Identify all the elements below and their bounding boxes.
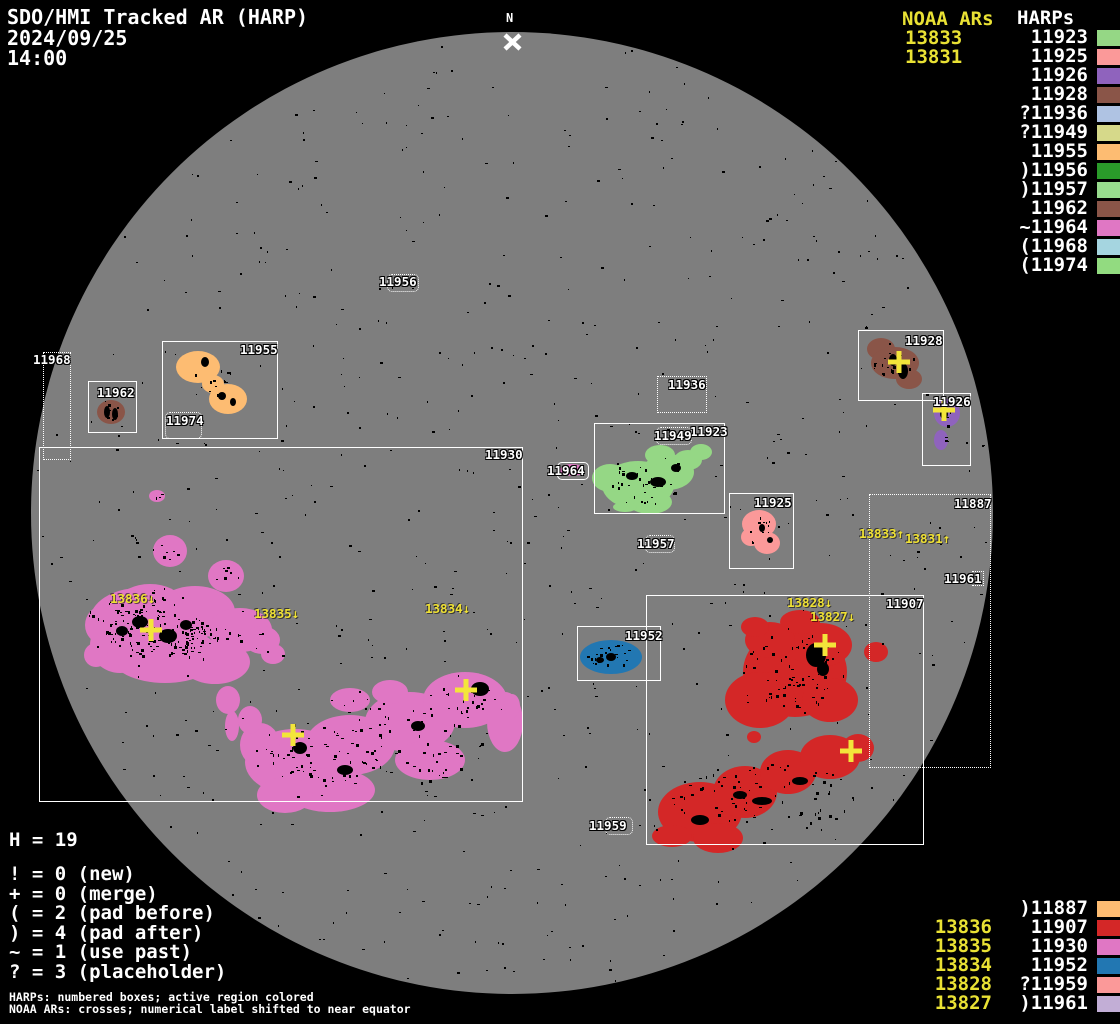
harp-box-label-11936: 11936 xyxy=(668,378,706,391)
noaa-ar-item-13831: 13831 xyxy=(905,48,962,67)
symbol-legend-line-2: ( = 2 (pad before) xyxy=(9,904,215,923)
harp-color-swatch-11936 xyxy=(1097,106,1120,122)
harp-tracking-visualization: 1193011907119551196211928119261192311925… xyxy=(0,0,1120,1024)
harp-box-label-11907: 11907 xyxy=(886,597,924,610)
harp-color-swatch-11952 xyxy=(1097,958,1120,974)
harp-box-label-11955: 11955 xyxy=(240,343,278,356)
harp-box-label-11887: 11887 xyxy=(954,497,992,510)
harp-color-swatch-11923 xyxy=(1097,30,1120,46)
harp-box-label-11949: 11949 xyxy=(654,429,692,442)
harp-box-label-11957: 11957 xyxy=(637,537,675,550)
harp-color-swatch-11968 xyxy=(1097,239,1120,255)
harp-color-swatch-11928 xyxy=(1097,87,1120,103)
harp-box-label-11928: 11928 xyxy=(905,334,943,347)
noaa-ar-pointer-13828: 13828↓ xyxy=(787,596,832,609)
noaa-ar-pointer-13834: 13834↓ xyxy=(425,602,470,615)
harp-color-swatch-11959 xyxy=(1097,977,1120,993)
harp-box-label-11962: 11962 xyxy=(97,386,135,399)
harp-color-swatch-11930 xyxy=(1097,939,1120,955)
harp-box-label-11930: 11930 xyxy=(485,448,523,461)
harp-color-swatch-11925 xyxy=(1097,49,1120,65)
harp-box-label-11974: 11974 xyxy=(166,414,204,427)
noaa-ar-pointer-13836: 13836↓ xyxy=(110,592,155,605)
harp-color-swatch-11949 xyxy=(1097,125,1120,141)
harp-box-label-11926: 11926 xyxy=(933,395,971,408)
harp-box-label-11952: 11952 xyxy=(625,629,663,642)
harp-count: H = 19 xyxy=(9,831,78,850)
symbol-legend-line-4: ~ = 1 (use past) xyxy=(9,943,192,962)
harp-color-swatch-11962 xyxy=(1097,201,1120,217)
harp-box-label-11968: 11968 xyxy=(33,353,71,366)
harp-color-swatch-11907 xyxy=(1097,920,1120,936)
harp-box-11968 xyxy=(43,352,71,460)
harp-color-swatch-11964 xyxy=(1097,220,1120,236)
harp-color-swatch-11955 xyxy=(1097,144,1120,160)
harp-color-swatch-11961 xyxy=(1097,996,1120,1012)
noaa-ar-pointer-13831: 13831↑ xyxy=(905,532,950,545)
noaa-ar-pointer-13827: 13827↓ xyxy=(810,610,855,623)
page-title: SDO/HMI Tracked AR (HARP) xyxy=(7,7,308,28)
harp-box-11930 xyxy=(39,447,523,802)
footnote-noaa: NOAA ARs: crosses; numerical label shift… xyxy=(9,1003,411,1015)
harp-item-11974: (11974 xyxy=(1019,256,1088,275)
noaa-ar-item-13827: 13827 xyxy=(935,994,992,1013)
north-label: N xyxy=(506,12,513,24)
harp-box-label-11923: 11923 xyxy=(690,425,728,438)
harp-color-swatch-11974 xyxy=(1097,258,1120,274)
harp-box-label-11961: 11961 xyxy=(944,572,982,585)
noaa-ar-pointer-13833: 13833↑ xyxy=(859,527,904,540)
harp-color-swatch-11887 xyxy=(1097,901,1120,917)
symbol-legend-line-0: ! = 0 (new) xyxy=(9,865,135,884)
harp-box-label-11925: 11925 xyxy=(754,496,792,509)
harp-color-swatch-11956 xyxy=(1097,163,1120,179)
harp-color-swatch-11926 xyxy=(1097,68,1120,84)
harp-item-11961: )11961 xyxy=(1019,994,1088,1013)
header-time: 14:00 xyxy=(7,48,67,69)
harp-box-label-11964: 11964 xyxy=(547,464,585,477)
annotation-layer: 1193011907119551196211928119261192311925… xyxy=(0,0,1120,1024)
noaa-ar-pointer-13835: 13835↓ xyxy=(254,607,299,620)
harp-box-label-11956: 11956 xyxy=(379,275,417,288)
harp-box-label-11959: 11959 xyxy=(589,819,627,832)
harp-color-swatch-11957 xyxy=(1097,182,1120,198)
symbol-legend-line-5: ? = 3 (placeholder) xyxy=(9,963,226,982)
